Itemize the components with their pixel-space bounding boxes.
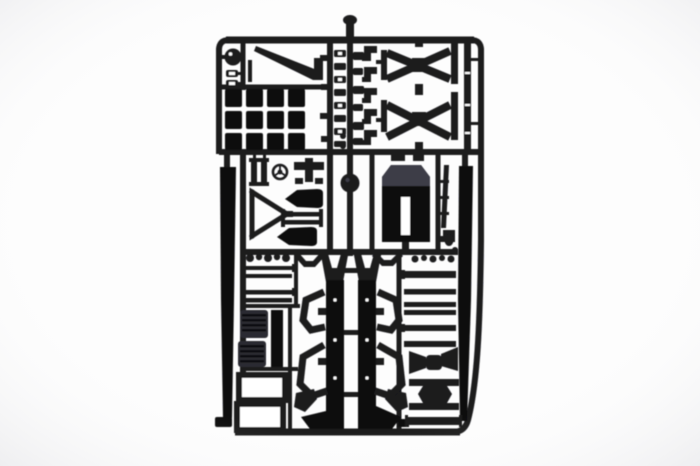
- kit-sprue-photo: model kit sprue product photo: [0, 0, 700, 466]
- sprue-photo-canvas: [0, 0, 700, 466]
- photo-vignette: [0, 0, 700, 466]
